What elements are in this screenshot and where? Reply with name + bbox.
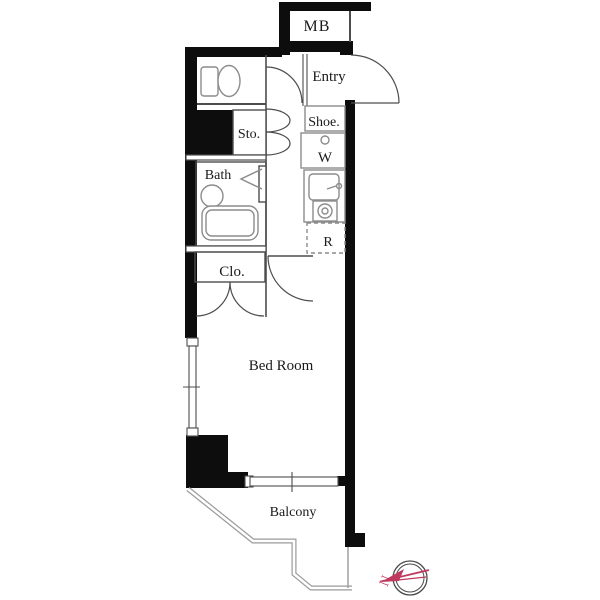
compass-icon: N — [377, 561, 429, 595]
bath-door-frame — [259, 166, 266, 202]
label-washer: W — [318, 150, 333, 166]
floor-plan: MB Entry Shoe. W Sto. Bath Clo. R Bed Ro… — [0, 0, 600, 600]
label-refrigerator: R — [323, 235, 333, 250]
right-wall — [345, 100, 355, 547]
label-entry: Entry — [312, 69, 346, 85]
southwest-pillar — [186, 435, 228, 488]
entry-hinge-wall — [340, 41, 353, 55]
storage-door-arc-bottom — [266, 132, 290, 155]
top-wall — [185, 47, 282, 57]
toilet-icon — [201, 66, 240, 97]
label-bath: Bath — [205, 168, 231, 183]
label-storage: Sto. — [238, 127, 260, 142]
label-mb: MB — [304, 18, 331, 35]
bath-fixtures — [201, 185, 258, 240]
floor-plan-page: MB Entry Shoe. W Sto. Bath Clo. R Bed Ro… — [0, 0, 600, 600]
label-closet: Clo. — [219, 264, 244, 280]
balcony-window — [250, 477, 338, 486]
bedroom-door-arc — [268, 256, 313, 301]
closet-door-arc-right — [230, 282, 264, 316]
label-balcony: Balcony — [270, 505, 317, 520]
left-wall — [185, 47, 197, 338]
mb-top-wall — [279, 2, 371, 11]
storage-pillar — [190, 110, 233, 155]
toilet-door-arc — [266, 67, 302, 103]
basin-icon — [201, 185, 223, 207]
entry-door-arc — [351, 55, 399, 103]
right-wall-foot — [345, 533, 365, 547]
balcony-outline — [188, 489, 352, 588]
closet-door-arc-left — [196, 282, 230, 316]
label-shoe: Shoe. — [308, 115, 340, 130]
storage-door-arc-top — [266, 109, 290, 132]
label-bedroom: Bed Room — [249, 358, 314, 374]
bathtub-icon — [202, 206, 258, 240]
